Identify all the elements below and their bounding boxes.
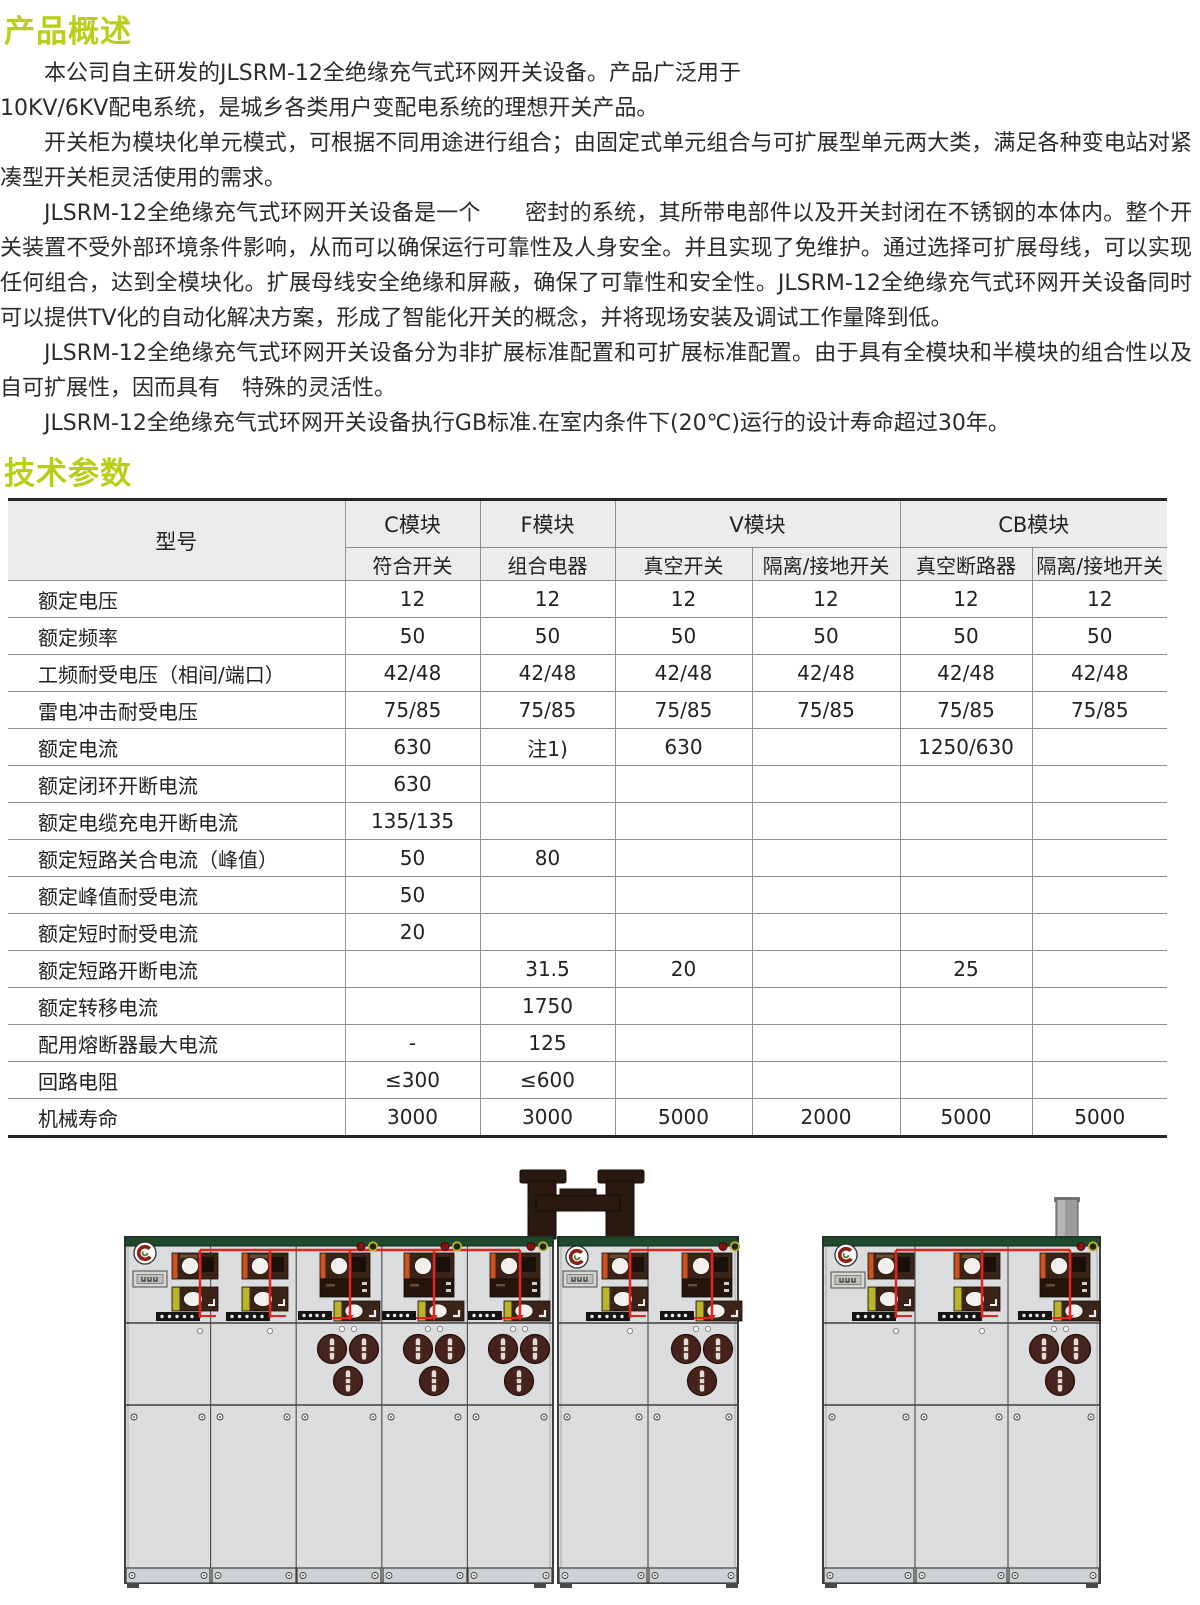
param-value: 42/48 [752,655,900,692]
table-row: 额定转移电流 1750 [8,988,1167,1025]
param-value [900,1025,1032,1062]
param-label: 额定电流 [8,729,345,766]
param-value: 75/85 [480,692,615,729]
overview-paragraph: 开关柜为模块化单元模式，可根据不同用途进行组合；由固定式单元组合与可扩展型单元两… [0,126,1192,196]
param-value [1032,766,1167,803]
brand-logo [566,1246,588,1268]
group-header-c: C模块 [345,500,480,548]
param-value: 42/48 [900,655,1032,692]
brand-logo [835,1244,857,1266]
param-label: 雷电冲击耐受电压 [8,692,345,729]
table-row: 回路电阻 ≤300 ≤600 [8,1062,1167,1099]
table-row: 额定短路关合电流（峰值） 50 80 [8,840,1167,877]
param-value [480,803,615,840]
overview-paragraph: JLSRM-12全绝缘充气式环网开关设备是一个 密封的系统，其所带电部件以及开关… [0,196,1192,336]
param-value: 20 [345,914,480,951]
param-value [480,766,615,803]
param-value [900,803,1032,840]
table-row: 额定频率 50 50 50 50 50 50 [8,618,1167,655]
param-value [900,877,1032,914]
param-value [1032,877,1167,914]
param-value: 12 [345,581,480,618]
param-value [752,766,900,803]
param-value: ≤300 [345,1062,480,1099]
param-value: 12 [480,581,615,618]
param-value: 42/48 [345,655,480,692]
param-value: 50 [345,618,480,655]
table-row: 额定短路开断电流 31.5 20 25 [8,951,1167,988]
param-value: 75/85 [752,692,900,729]
table-row: 额定闭环开断电流 630 [8,766,1167,803]
table-row: 额定电流 630 注1) 630 1250/630 [8,729,1167,766]
param-value: 50 [752,618,900,655]
param-label: 额定短路关合电流（峰值） [8,840,345,877]
param-value [752,1062,900,1099]
param-value [752,877,900,914]
param-value: 75/85 [345,692,480,729]
param-value: 25 [900,951,1032,988]
param-value [752,914,900,951]
datasheet-page: 产品概述 本公司自主研发的JLSRM-12全绝缘充气式环网开关设备。产品广泛用于… [0,0,1200,1605]
param-value: 75/85 [1032,692,1167,729]
param-value [1032,803,1167,840]
nameplate [563,1271,597,1287]
param-label: 额定电压 [8,581,345,618]
param-value [1032,914,1167,951]
param-value [1032,1062,1167,1099]
param-label: 机械寿命 [8,1099,345,1137]
param-value [900,914,1032,951]
param-value [900,766,1032,803]
param-value: 12 [1032,581,1167,618]
table-body: 额定电压 12 12 12 12 12 12 额定频率 50 50 50 50 … [8,581,1167,1137]
param-label: 额定转移电流 [8,988,345,1025]
overview-paragraph: JLSRM-12全绝缘充气式环网开关设备分为非扩展标准配置和可扩展标准配置。由于… [0,336,1192,406]
param-value [480,914,615,951]
cabinet-right [823,1237,1100,1588]
param-value: 5000 [615,1099,752,1137]
overview-paragraph: 本公司自主研发的JLSRM-12全绝缘充气式环网开关设备。产品广泛用于 [0,56,1192,91]
exhaust-duct [1054,1197,1080,1239]
param-value [900,840,1032,877]
param-value: 80 [480,840,615,877]
header-row-modules: 型号 C模块 F模块 V模块 CB模块 [8,500,1167,548]
group-header-cb: CB模块 [900,500,1167,548]
overview-heading: 产品概述 [4,6,132,51]
param-value: 31.5 [480,951,615,988]
table-row: 工频耐受电压（相间/端口） 42/48 42/48 42/48 42/48 42… [8,655,1167,692]
param-value [615,840,752,877]
group-header-v: V模块 [615,500,900,548]
param-value [752,1025,900,1062]
param-value [1032,988,1167,1025]
param-value: 50 [900,618,1032,655]
param-value [752,840,900,877]
param-value [345,988,480,1025]
param-value [615,1025,752,1062]
param-value: 75/85 [615,692,752,729]
param-value [615,988,752,1025]
param-value: 注1) [480,729,615,766]
overview-paragraph: 10KV/6KV配电系统，是城乡各类用户变配电系统的理想开关产品。 [0,91,1192,126]
param-value [1032,951,1167,988]
param-value [752,988,900,1025]
param-value: 135/135 [345,803,480,840]
param-value [900,988,1032,1025]
param-label: 额定闭环开断电流 [8,766,345,803]
sub-header: 隔离/接地开关 [752,548,900,581]
param-value: 75/85 [900,692,1032,729]
param-value: 50 [615,618,752,655]
table-row: 配用熔断器最大电流 - 125 [8,1025,1167,1062]
param-value: 5000 [900,1099,1032,1137]
bottom-rail [824,1568,1099,1583]
param-value [752,729,900,766]
bottom-rail [126,1568,552,1583]
group-header-f: F模块 [480,500,615,548]
param-value: 125 [480,1025,615,1062]
switchgear-figure [0,1135,1200,1605]
cabinet-middle [558,1237,742,1588]
sub-header: 组合电器 [480,548,615,581]
param-value: 12 [752,581,900,618]
param-value [752,803,900,840]
tech-params-table: 型号 C模块 F模块 V模块 CB模块 符合开关 组合电器 真空开关 隔离/接地… [8,498,1167,1138]
table-row: 额定电缆充电开断电流 135/135 [8,803,1167,840]
param-label: 配用熔断器最大电流 [8,1025,345,1062]
param-value: 630 [345,729,480,766]
nameplate [831,1272,865,1288]
param-value [615,877,752,914]
param-value: 12 [900,581,1032,618]
param-value [480,877,615,914]
param-label: 回路电阻 [8,1062,345,1099]
param-value: 42/48 [480,655,615,692]
sub-header: 真空断路器 [900,548,1032,581]
param-label: 额定电缆充电开断电流 [8,803,345,840]
param-value [1032,840,1167,877]
param-value [615,914,752,951]
param-value: 50 [1032,618,1167,655]
param-value [900,1062,1032,1099]
table-row: 机械寿命 3000 3000 5000 2000 5000 5000 [8,1099,1167,1137]
model-header: 型号 [8,500,345,581]
param-value: 3000 [345,1099,480,1137]
param-value: ≤600 [480,1062,615,1099]
param-value: - [345,1025,480,1062]
cabinet-left [125,1237,553,1588]
param-value: 50 [345,840,480,877]
param-value: 50 [345,877,480,914]
param-value [1032,1025,1167,1062]
param-value: 12 [615,581,752,618]
overview-text: 本公司自主研发的JLSRM-12全绝缘充气式环网开关设备。产品广泛用于 10KV… [0,56,1192,441]
param-label: 额定短路开断电流 [8,951,345,988]
param-value [615,803,752,840]
sub-header: 真空开关 [615,548,752,581]
param-value [615,1062,752,1099]
param-value [1032,729,1167,766]
overview-paragraph: JLSRM-12全绝缘充气式环网开关设备执行GB标准.在室内条件下(20℃)运行… [0,406,1192,441]
param-label: 额定短时耐受电流 [8,914,345,951]
param-value: 2000 [752,1099,900,1137]
param-value [345,951,480,988]
busbar-bridge [520,1170,644,1239]
param-value: 3000 [480,1099,615,1137]
table-row: 额定短时耐受电流 20 [8,914,1167,951]
param-label: 工频耐受电压（相间/端口） [8,655,345,692]
param-value: 42/48 [1032,655,1167,692]
param-value: 1750 [480,988,615,1025]
param-value: 20 [615,951,752,988]
param-value: 630 [345,766,480,803]
nameplate [133,1271,167,1287]
param-value: 630 [615,729,752,766]
param-label: 额定频率 [8,618,345,655]
param-value: 42/48 [615,655,752,692]
table-row: 额定电压 12 12 12 12 12 12 [8,581,1167,618]
sub-header: 符合开关 [345,548,480,581]
table-row: 额定峰值耐受电流 50 [8,877,1167,914]
param-value [752,951,900,988]
brand-logo [134,1242,156,1264]
param-value: 5000 [1032,1099,1167,1137]
param-value: 50 [480,618,615,655]
param-label: 额定峰值耐受电流 [8,877,345,914]
param-value: 1250/630 [900,729,1032,766]
tech-params-heading: 技术参数 [4,448,132,493]
table-row: 雷电冲击耐受电压 75/85 75/85 75/85 75/85 75/85 7… [8,692,1167,729]
param-value [615,766,752,803]
sub-header: 隔离/接地开关 [1032,548,1167,581]
